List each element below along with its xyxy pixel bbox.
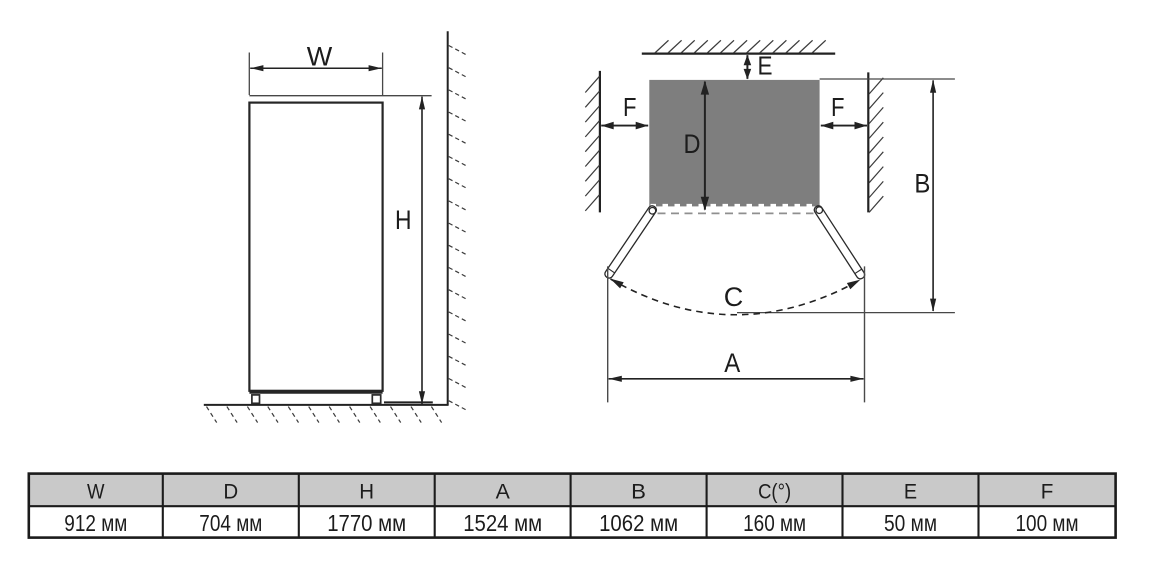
svg-text:F: F — [623, 92, 637, 122]
svg-text:F: F — [831, 92, 845, 122]
svg-text:E: E — [904, 479, 917, 503]
svg-text:912 мм: 912 мм — [64, 510, 127, 536]
svg-text:704 мм: 704 мм — [199, 510, 262, 536]
svg-text:1062 мм: 1062 мм — [599, 510, 678, 536]
svg-text:W: W — [307, 41, 333, 71]
svg-text:100 мм: 100 мм — [1016, 510, 1079, 536]
svg-text:1770 мм: 1770 мм — [327, 510, 406, 536]
svg-text:B: B — [631, 479, 646, 503]
svg-text:E: E — [758, 50, 773, 80]
svg-text:160 мм: 160 мм — [743, 510, 806, 536]
svg-text:D: D — [223, 479, 238, 503]
svg-text:50 мм: 50 мм — [884, 510, 937, 536]
svg-text:W: W — [87, 479, 105, 503]
svg-text:A: A — [724, 348, 740, 378]
svg-text:B: B — [914, 168, 930, 198]
svg-text:1524 мм: 1524 мм — [463, 510, 542, 536]
svg-text:H: H — [395, 205, 412, 235]
svg-text:C: C — [724, 282, 744, 312]
svg-text:H: H — [359, 479, 374, 503]
svg-text:D: D — [684, 129, 701, 159]
svg-text:A: A — [496, 479, 511, 503]
svg-text:F: F — [1041, 479, 1054, 503]
svg-text:C(°): C(°) — [758, 479, 791, 503]
